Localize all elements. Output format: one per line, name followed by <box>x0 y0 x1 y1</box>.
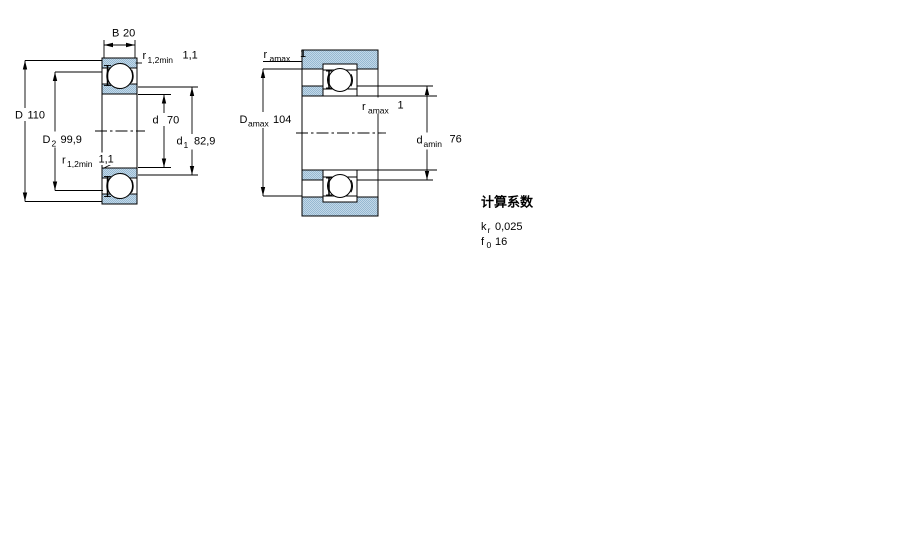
dim-Da-symbol: D <box>240 114 248 126</box>
arrowhead <box>261 69 265 78</box>
arrowhead <box>53 182 57 191</box>
mounting-view: r amax 1 D amax 104 r amax 1 <box>238 48 462 216</box>
dim-D2-symbol: D <box>43 134 51 146</box>
dim-D-value: 110 <box>28 110 46 122</box>
shaft-shoulder-top <box>302 86 323 96</box>
dim-ra-mid-value: 1 <box>398 100 404 112</box>
arrowhead <box>162 95 166 104</box>
dim-ra-top-subscript: amax <box>270 54 292 64</box>
dim-D2-subscript: 2 <box>52 139 57 149</box>
dimension-r12-top: r 1,2min 1,1 <box>136 50 198 66</box>
dim-D2-value: 99,9 <box>61 134 82 146</box>
dim-r12-top-symbol: r <box>143 50 147 62</box>
dim-r12-top-value: 1,1 <box>183 50 198 62</box>
arrowhead <box>190 87 194 96</box>
arrowhead <box>23 193 27 202</box>
factor-f0-subscript: 0 <box>487 240 492 250</box>
dim-ra-mid-subscript: amax <box>368 106 390 116</box>
dim-d1-value: 82,9 <box>194 136 215 148</box>
arrowhead <box>126 43 135 47</box>
dim-r12-bottom-value: 1,1 <box>99 154 114 166</box>
factor-f0-value: 16 <box>495 236 507 248</box>
factor-kr-symbol: k <box>481 221 487 233</box>
factor-kr-value: 0,025 <box>495 221 523 233</box>
dimension-D: D 110 <box>13 61 103 202</box>
dim-Da-subscript: amax <box>248 119 270 129</box>
arrowhead <box>162 159 166 168</box>
arrowhead <box>104 43 113 47</box>
arrowhead <box>23 61 27 70</box>
shaft-shoulder-bottom <box>302 170 323 180</box>
dim-r12-top-subscript: 1,2min <box>148 55 174 65</box>
technical-drawing: B 20 r 1,2min 1,1 D 110 <box>0 0 900 560</box>
dim-d1-subscript: 1 <box>184 140 189 150</box>
bearing-drawing-page: B 20 r 1,2min 1,1 D 110 <box>0 0 900 560</box>
dim-d-symbol: d <box>153 115 159 127</box>
dim-da-subscript: amin <box>424 139 443 149</box>
dim-ra-top-value: 1 <box>300 48 306 60</box>
arrowhead <box>261 187 265 196</box>
arrowhead <box>190 166 194 175</box>
arrowhead <box>53 72 57 81</box>
dim-da-value: 76 <box>450 134 462 146</box>
dimension-ra-top: r amax 1 <box>263 48 306 64</box>
ball-bottom <box>108 174 133 199</box>
section-view: B 20 r 1,2min 1,1 D 110 <box>13 28 220 205</box>
dimension-r12-bottom: r 1,2min 1,1 <box>62 153 114 170</box>
ball-top <box>108 64 133 89</box>
dimension-d1: d 1 82,9 <box>138 87 219 175</box>
dimension-Da: D amax 104 <box>238 69 303 196</box>
dim-r12-bottom-subscript: 1,2min <box>67 159 93 169</box>
dim-r12-bottom-symbol: r <box>62 155 66 167</box>
dim-ra-mid-symbol: r <box>362 101 366 113</box>
arrowhead <box>425 86 429 95</box>
dim-B-value: 20 <box>123 28 135 40</box>
bearing-cross-section <box>95 58 145 204</box>
factor-f0-symbol: f <box>481 236 485 248</box>
dimension-D2: D 2 99,9 <box>40 72 103 191</box>
dim-D-symbol: D <box>15 110 23 122</box>
factor-kr-subscript: r <box>488 225 491 235</box>
dimension-B: B 20 <box>104 28 135 58</box>
factors-title: 计算系数 <box>481 195 534 211</box>
dim-da-symbol: d <box>417 135 423 147</box>
dim-Da-value: 104 <box>273 114 291 126</box>
factor-kr: k r 0,025 <box>481 221 523 235</box>
dim-d-value: 70 <box>167 115 179 127</box>
arrowhead <box>425 171 429 180</box>
dim-d1-symbol: d <box>177 136 183 148</box>
factor-f0: f 0 16 <box>481 236 507 250</box>
dim-ra-top-symbol: r <box>264 49 268 61</box>
dim-B-symbol: B <box>112 28 119 40</box>
calculation-factors: 计算系数 k r 0,025 f 0 16 <box>481 195 534 251</box>
dimension-ra-mid: r amax 1 <box>359 98 405 116</box>
